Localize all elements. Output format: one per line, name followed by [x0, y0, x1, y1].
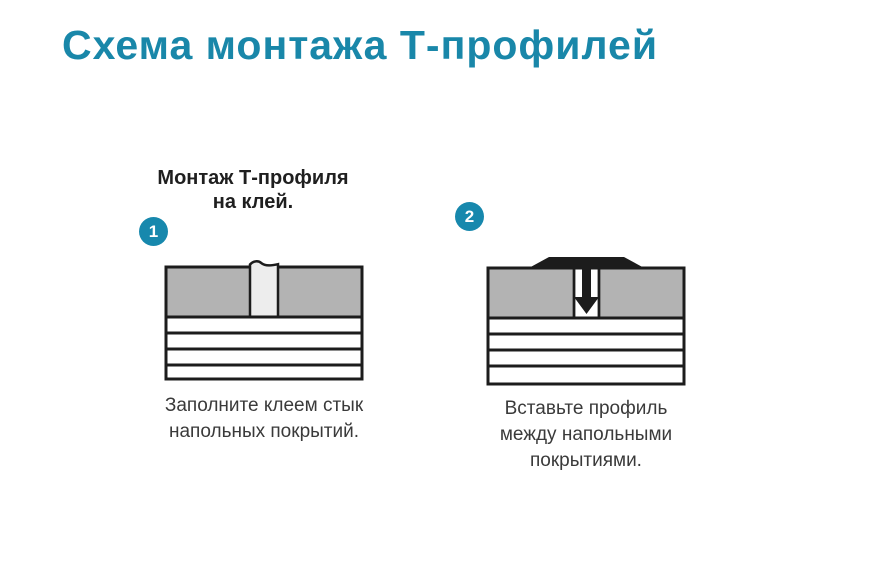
diagram-glue-joint-illustration: [164, 259, 364, 381]
step2-caption-line2: между напольными: [461, 422, 711, 448]
step2-caption-line3: покрытиями.: [461, 448, 711, 474]
step1-heading-line2: на клей.: [128, 190, 378, 214]
step2-number-badge: 2: [455, 202, 484, 231]
step1-number-badge: 1: [139, 217, 168, 246]
step1-caption-line1: Заполните клеем стык: [139, 393, 389, 419]
glue-fill: [250, 261, 278, 317]
step1-number: 1: [149, 222, 158, 242]
floor-covering-left: [490, 270, 573, 319]
step2-caption-line1: Вставьте профиль: [461, 396, 711, 422]
floor-covering-left: [168, 269, 251, 318]
infographic-canvas: Схема монтажа Т-профилей Монтаж Т-профил…: [0, 0, 875, 563]
diagram-profile-insertion-illustration: [486, 253, 686, 386]
t-profile-cap: [527, 257, 646, 269]
step2-number: 2: [465, 207, 474, 227]
floor-covering-right: [278, 269, 361, 318]
step1-caption-line2: напольных покрытий.: [139, 419, 389, 445]
floor-covering-right: [601, 270, 683, 319]
step2-caption: Вставьте профиль между напольными покрыт…: [461, 396, 711, 474]
step1-heading-line1: Монтаж Т-профиля: [128, 166, 378, 190]
step1-heading: Монтаж Т-профиля на клей.: [128, 166, 378, 214]
step1-caption: Заполните клеем стык напольных покрытий.: [139, 393, 389, 445]
page-title: Схема монтажа Т-профилей: [62, 22, 658, 69]
